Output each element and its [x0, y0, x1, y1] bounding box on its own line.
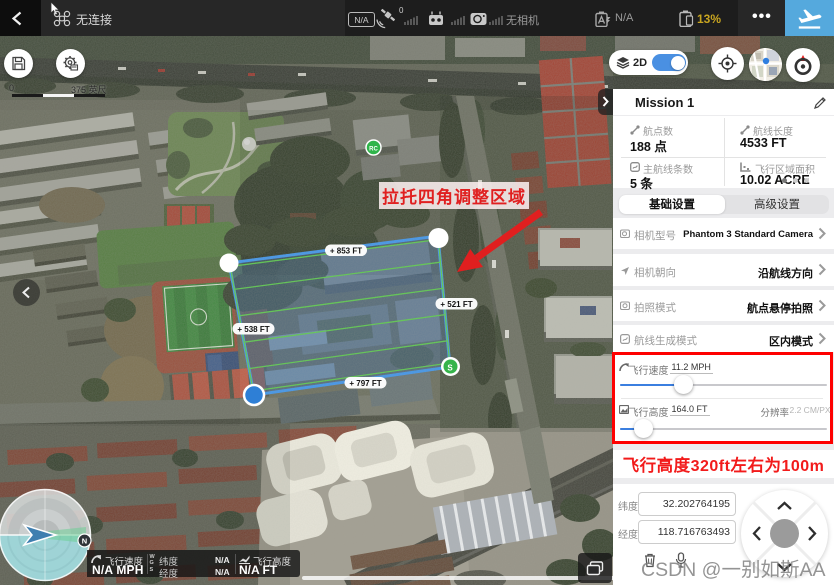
svg-text:+ 538 FT: + 538 FT: [237, 325, 269, 334]
svg-text:N: N: [82, 537, 87, 546]
svg-text:+ 797 FT: + 797 FT: [349, 379, 381, 388]
svg-text:RC: RC: [369, 147, 378, 153]
svg-text:+ 521 FT: + 521 FT: [440, 300, 472, 309]
svg-text:+ 853 FT: + 853 FT: [330, 247, 362, 256]
svg-text:S: S: [447, 364, 453, 373]
